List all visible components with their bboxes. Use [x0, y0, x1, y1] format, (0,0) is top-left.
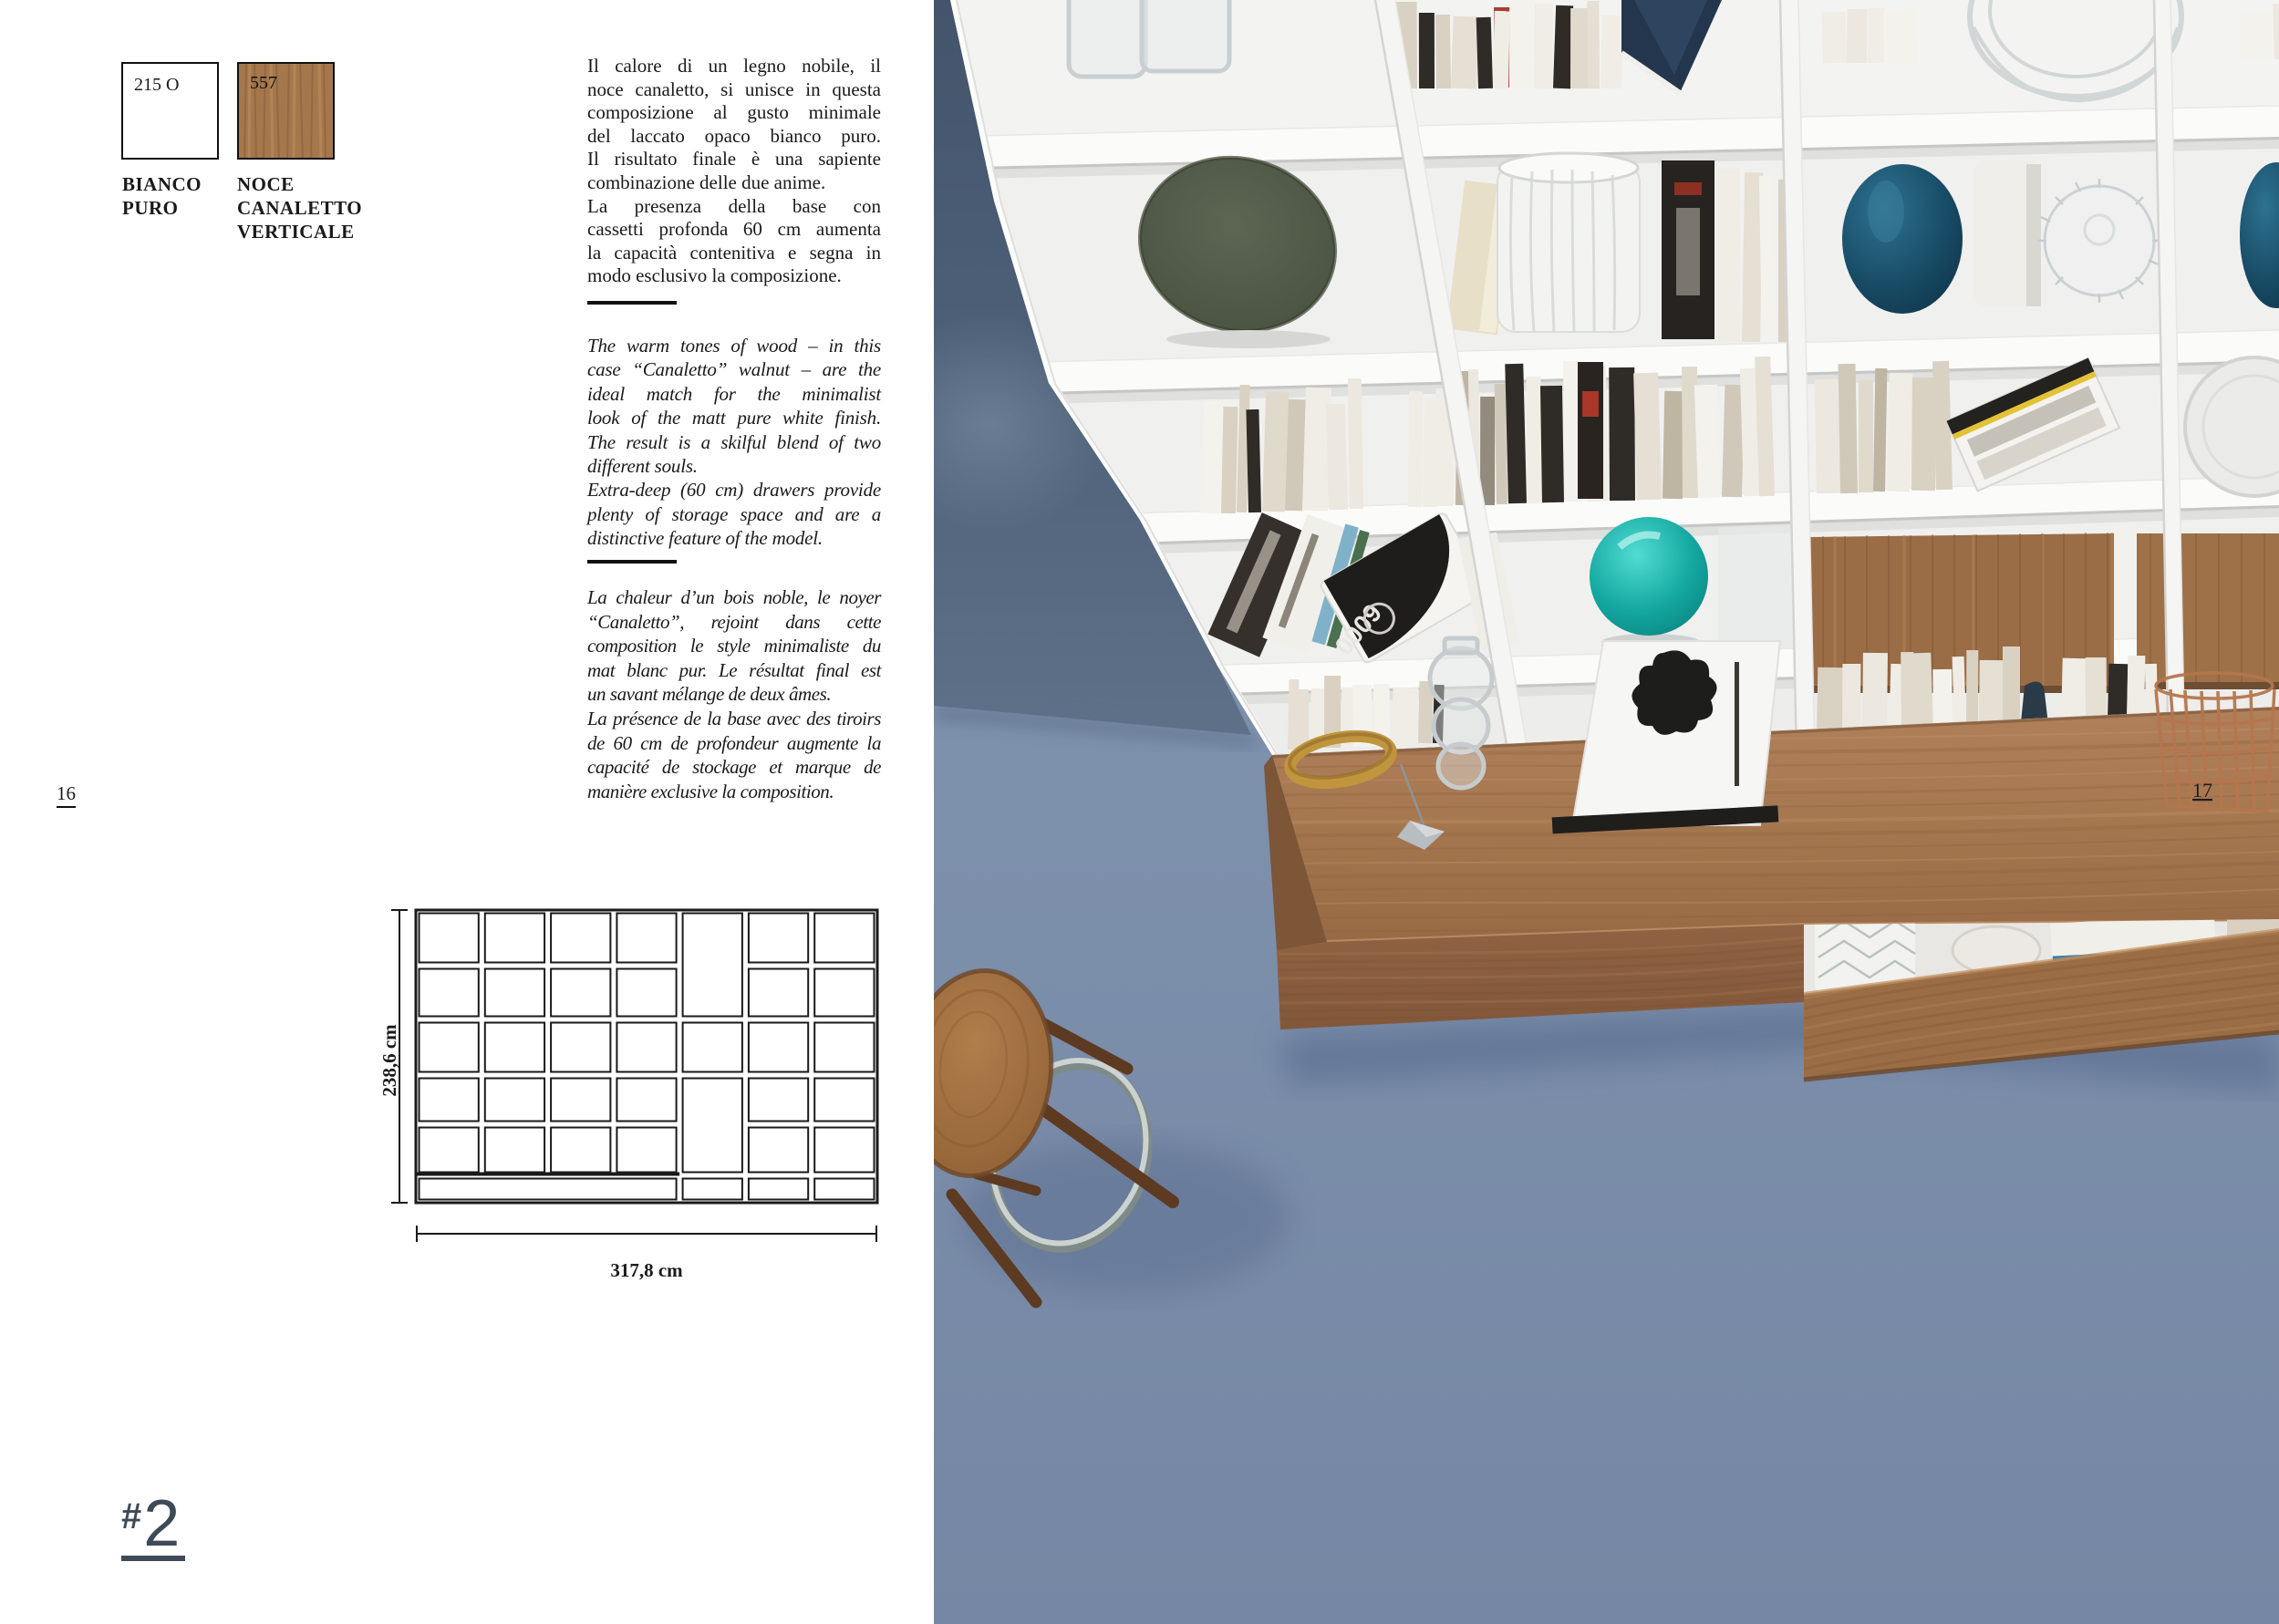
svg-text:17: 17	[2192, 779, 2212, 802]
svg-text:238,6 cm: 238,6 cm	[378, 1024, 400, 1097]
svg-text:317,8 cm: 317,8 cm	[610, 1259, 683, 1281]
